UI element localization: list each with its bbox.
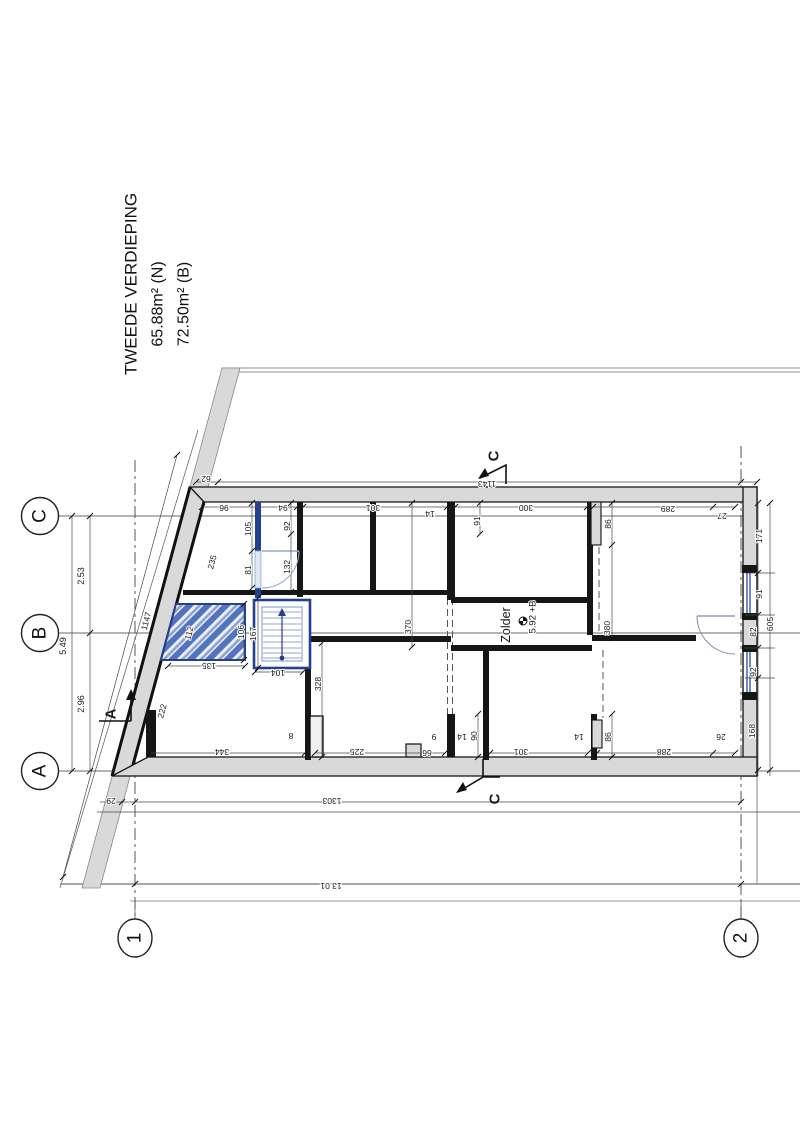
floorplan-page: TWEEDE VERDIEPING65.88m² (N)72.50m² (B)C…	[0, 0, 800, 1131]
dim-label: 96	[219, 503, 229, 513]
labels-layer: TWEEDE VERDIEPING65.88m² (N)72.50m² (B)C…	[30, 193, 776, 943]
dim-label: 1303	[322, 796, 341, 806]
dim-label: 90	[469, 731, 479, 741]
dim-label: 167	[248, 627, 258, 641]
level-symbol	[519, 617, 527, 625]
dimension-lines	[60, 452, 800, 919]
dim-label: 300	[519, 503, 533, 513]
dim-label: 301	[366, 503, 380, 513]
grid-label-c: C	[30, 509, 51, 523]
chimney-stub	[406, 744, 421, 757]
dim-label: 105	[243, 522, 253, 536]
dim-label: 62	[201, 474, 211, 484]
dim-label: 91	[754, 589, 764, 599]
dim-label: 66	[422, 748, 432, 758]
area-gross-label: 72.50m² (B)	[176, 262, 193, 346]
dim-label: 2.53	[76, 567, 86, 585]
dim-label: 14	[457, 732, 467, 742]
dim-label: 86	[603, 519, 613, 529]
floor-plan-drawing: TWEEDE VERDIEPING65.88m² (N)72.50m² (B)C…	[0, 0, 800, 1131]
grid-label-a: A	[30, 764, 51, 777]
section-marker-a: A	[103, 708, 120, 719]
dim-label: 168	[747, 724, 757, 738]
dim-label: 380	[602, 621, 612, 635]
grid-label-b: B	[30, 627, 51, 640]
dim-label: 222	[155, 703, 168, 720]
section-marker-c-bottom: C	[487, 793, 504, 804]
section-marker-c-top: C	[486, 450, 503, 461]
grid-label-1: 1	[125, 933, 146, 944]
dim-label: 92	[282, 521, 292, 531]
dim-label: 370	[403, 620, 413, 634]
level-label: 5.92 +B	[528, 600, 539, 633]
dim-label: 13.01	[320, 881, 342, 891]
dim-label: 91	[472, 516, 482, 526]
dim-label: 26	[716, 732, 726, 742]
void-hatch	[161, 604, 245, 660]
dim-label: 9	[431, 732, 436, 742]
dim-label: 1143	[478, 479, 497, 489]
wall-pilasters	[310, 502, 602, 757]
dim-label: 104	[271, 668, 285, 678]
dim-label: 14	[425, 509, 435, 519]
dim-label: 605	[765, 617, 775, 631]
dim-label: 288	[657, 747, 671, 757]
dim-label: 171	[754, 529, 764, 543]
door-swing	[262, 551, 299, 588]
dim-label: 86	[603, 732, 613, 742]
dim-label: 289	[661, 504, 675, 514]
dim-label: 235	[205, 554, 218, 571]
dim-label: 94	[278, 503, 288, 513]
dim-label: 92	[748, 667, 758, 677]
dim-label: 27	[717, 511, 727, 521]
dim-label: 5.49	[58, 637, 68, 655]
room-label: Zolder	[499, 607, 513, 642]
dim-label: 225	[350, 747, 364, 757]
blue-wall	[255, 502, 261, 598]
terrace-door-swing	[697, 616, 735, 654]
dim-label: 82	[748, 627, 758, 637]
area-net-label: 65.88m² (N)	[150, 261, 167, 346]
dim-label: 344	[215, 747, 229, 757]
grid-label-2: 2	[731, 933, 752, 944]
dim-label: 328	[313, 677, 323, 691]
dim-label: 2.96	[76, 695, 86, 713]
dim-label: 14	[574, 732, 584, 742]
dim-label: 106	[236, 625, 246, 639]
dim-label: 8	[288, 731, 293, 741]
dim-label: 301	[514, 747, 528, 757]
dim-label: 81	[243, 565, 253, 575]
dim-label: 29	[106, 796, 116, 806]
dim-label: 132	[282, 560, 292, 574]
roof-edge-dashed	[448, 547, 604, 718]
staircase	[254, 600, 310, 668]
dim-label: 135	[202, 661, 216, 671]
plan-title: TWEEDE VERDIEPING	[122, 193, 141, 375]
